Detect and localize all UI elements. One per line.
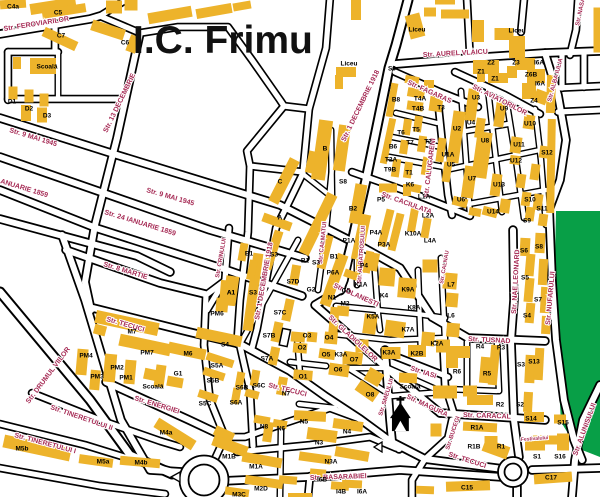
- svg-text:G2: G2: [307, 287, 316, 294]
- svg-text:S6B: S6B: [236, 385, 249, 392]
- svg-text:S14: S14: [525, 416, 537, 423]
- svg-text:O1: O1: [299, 374, 308, 381]
- svg-text:B2: B2: [349, 206, 358, 213]
- svg-text:S4: S4: [523, 313, 531, 320]
- svg-text:U7: U7: [468, 176, 477, 183]
- svg-text:U13: U13: [493, 182, 505, 189]
- svg-text:U6: U6: [457, 197, 466, 204]
- svg-text:I6A: I6A: [535, 81, 545, 88]
- svg-text:L7: L7: [447, 282, 455, 289]
- svg-text:PM6: PM6: [210, 311, 224, 318]
- svg-text:T4A: T4A: [414, 96, 427, 103]
- svg-text:S2: S2: [516, 402, 524, 409]
- svg-text:G5: G5: [342, 288, 351, 295]
- svg-text:U2: U2: [453, 126, 462, 133]
- svg-text:K4: K4: [380, 293, 389, 300]
- svg-text:S1: S1: [533, 454, 541, 461]
- svg-text:PM3: PM3: [90, 374, 104, 381]
- svg-text:Z6B: Z6B: [525, 72, 538, 79]
- svg-text:N6: N6: [277, 426, 286, 433]
- svg-text:R3: R3: [497, 345, 506, 352]
- svg-text:K10A: K10A: [405, 231, 422, 238]
- svg-text:U14: U14: [487, 209, 499, 216]
- svg-text:S10: S10: [524, 197, 536, 204]
- svg-text:M4b: M4b: [135, 460, 148, 467]
- svg-text:Z3: Z3: [512, 60, 520, 67]
- svg-text:K3A: K3A: [382, 350, 395, 357]
- svg-text:C4a: C4a: [7, 4, 19, 11]
- svg-text:S7D: S7D: [287, 279, 300, 286]
- svg-text:T2A: T2A: [385, 157, 398, 164]
- svg-text:L4A: L4A: [424, 238, 437, 245]
- svg-text:S4: S4: [221, 342, 229, 349]
- svg-text:S3: S3: [270, 252, 278, 259]
- svg-text:N1: N1: [328, 295, 337, 302]
- svg-text:N4: N4: [343, 429, 352, 436]
- svg-text:Liceu: Liceu: [509, 28, 526, 35]
- svg-text:K3A: K3A: [334, 352, 347, 359]
- svg-text:S6: S6: [520, 248, 528, 255]
- svg-text:P4: P4: [360, 263, 368, 270]
- svg-text:I6A: I6A: [357, 489, 367, 496]
- svg-text:M2: M2: [340, 301, 349, 308]
- svg-text:D1: D1: [8, 99, 17, 106]
- svg-text:Z1: Z1: [491, 76, 499, 83]
- svg-text:PM4: PM4: [79, 353, 93, 360]
- svg-text:Z2: Z2: [487, 60, 495, 67]
- svg-text:C17: C17: [545, 475, 557, 482]
- svg-text:T7: T7: [406, 140, 414, 147]
- svg-text:I.C. Frimu: I.C. Frimu: [133, 19, 313, 62]
- svg-text:B1: B1: [330, 254, 339, 261]
- svg-text:P5: P5: [377, 197, 385, 204]
- svg-text:K7A: K7A: [401, 327, 414, 334]
- svg-text:K6: K6: [406, 182, 415, 189]
- svg-text:U10: U10: [524, 121, 536, 128]
- svg-text:D2: D2: [25, 106, 34, 113]
- svg-text:T9B: T9B: [384, 167, 397, 174]
- svg-text:C7: C7: [57, 33, 66, 40]
- svg-text:P1A: P1A: [343, 238, 356, 245]
- svg-text:R2: R2: [496, 402, 505, 409]
- svg-text:I4B: I4B: [336, 489, 346, 496]
- svg-text:PM7: PM7: [140, 350, 154, 357]
- svg-text:S5: S5: [521, 275, 529, 282]
- svg-text:U3: U3: [472, 95, 481, 102]
- svg-text:M5a: M5a: [97, 459, 110, 466]
- svg-text:S7: S7: [534, 297, 542, 304]
- svg-text:K1A: K1A: [354, 282, 367, 289]
- svg-text:O7: O7: [350, 357, 359, 364]
- svg-text:T2: T2: [424, 139, 432, 146]
- svg-text:T1: T1: [405, 170, 413, 177]
- svg-text:S3: S3: [312, 260, 320, 267]
- svg-text:S9: S9: [388, 66, 396, 73]
- svg-text:K2A: K2A: [430, 341, 443, 348]
- svg-text:N3: N3: [315, 440, 324, 447]
- svg-text:L1A: L1A: [418, 194, 431, 201]
- svg-text:R1: R1: [497, 444, 506, 451]
- svg-text:R4: R4: [476, 344, 485, 351]
- svg-text:U8: U8: [481, 138, 490, 145]
- svg-text:Z1: Z1: [477, 69, 485, 76]
- svg-text:S7A: S7A: [261, 356, 274, 363]
- svg-text:U12: U12: [510, 158, 522, 165]
- svg-text:S5B: S5B: [207, 378, 220, 385]
- svg-text:U9: U9: [500, 106, 509, 113]
- svg-text:T4B: T4B: [412, 106, 425, 113]
- svg-text:A: A: [278, 215, 283, 222]
- svg-text:A1: A1: [227, 290, 236, 297]
- svg-text:M4a: M4a: [160, 430, 173, 437]
- svg-text:R1A: R1A: [470, 425, 483, 432]
- svg-text:R1B: R1B: [467, 444, 480, 451]
- svg-text:C: C: [278, 179, 283, 186]
- svg-text:O8: O8: [366, 392, 375, 399]
- svg-text:N7: N7: [282, 391, 291, 398]
- svg-text:K5A: K5A: [366, 314, 379, 321]
- svg-text:T5: T5: [412, 127, 420, 134]
- svg-text:PM2: PM2: [110, 365, 124, 372]
- svg-text:P6A: P6A: [327, 270, 340, 277]
- svg-text:U5: U5: [447, 162, 456, 169]
- svg-text:Scoală: Scoală: [37, 64, 58, 71]
- svg-text:M1B: M1B: [222, 454, 236, 461]
- svg-text:B1: B1: [301, 258, 310, 265]
- svg-text:M5b: M5b: [16, 446, 29, 453]
- svg-text:R6: R6: [453, 369, 462, 376]
- svg-text:N3A: N3A: [324, 459, 337, 466]
- svg-text:I6A: I6A: [534, 60, 544, 67]
- svg-text:U1A: U1A: [441, 152, 454, 159]
- svg-text:S8: S8: [339, 179, 347, 186]
- svg-text:K2B: K2B: [410, 351, 423, 358]
- svg-text:M3C: M3C: [232, 492, 246, 498]
- svg-text:S6A: S6A: [230, 400, 243, 407]
- svg-text:D3: D3: [43, 113, 52, 120]
- svg-text:O6: O6: [334, 367, 343, 374]
- svg-text:S5C: S5C: [199, 401, 212, 408]
- svg-text:S6C: S6C: [253, 383, 266, 390]
- svg-text:Z4: Z4: [530, 98, 538, 105]
- svg-text:G1: G1: [174, 371, 183, 378]
- svg-text:B8: B8: [392, 97, 401, 104]
- svg-text:B1: B1: [245, 251, 254, 258]
- svg-text:U11: U11: [513, 142, 525, 149]
- svg-text:S3: S3: [249, 290, 257, 297]
- svg-text:O3: O3: [303, 333, 312, 340]
- svg-text:I6B: I6B: [317, 477, 327, 484]
- svg-text:S7C: S7C: [274, 310, 287, 317]
- svg-text:S13: S13: [528, 359, 540, 366]
- svg-text:Scoală: Scoală: [400, 384, 421, 391]
- svg-text:K8A: K8A: [407, 305, 420, 312]
- svg-text:L2A: L2A: [422, 213, 435, 220]
- svg-text:M7: M7: [127, 329, 136, 336]
- svg-text:L6: L6: [447, 313, 455, 320]
- svg-text:B6: B6: [389, 144, 398, 151]
- svg-text:S3: S3: [517, 362, 525, 369]
- svg-text:S15: S15: [557, 420, 569, 427]
- svg-text:S11: S11: [536, 206, 548, 213]
- svg-text:Scoală: Scoală: [143, 384, 164, 391]
- svg-text:Liceu: Liceu: [341, 61, 358, 68]
- svg-text:N5: N5: [300, 419, 309, 426]
- svg-text:C15: C15: [461, 485, 473, 492]
- svg-text:S9: S9: [523, 218, 531, 225]
- svg-text:C6: C6: [121, 40, 130, 47]
- svg-text:M1A: M1A: [249, 464, 263, 471]
- svg-text:P3A: P3A: [378, 242, 391, 249]
- svg-text:P4A: P4A: [370, 230, 383, 237]
- svg-text:O5: O5: [322, 352, 331, 359]
- svg-text:M6: M6: [183, 351, 192, 358]
- svg-text:S8: S8: [535, 244, 543, 251]
- svg-text:O2: O2: [298, 345, 307, 352]
- svg-text:N8: N8: [260, 424, 269, 431]
- svg-text:S7B: S7B: [263, 333, 276, 340]
- svg-text:R5: R5: [483, 371, 492, 378]
- svg-text:K9A: K9A: [401, 287, 414, 294]
- svg-text:M2D: M2D: [254, 486, 268, 493]
- svg-text:T3: T3: [437, 105, 445, 112]
- svg-text:PM1: PM1: [119, 375, 133, 382]
- svg-text:S16: S16: [554, 454, 566, 461]
- svg-text:C5: C5: [54, 10, 63, 17]
- svg-text:O4: O4: [325, 335, 334, 342]
- svg-text:S12: S12: [541, 150, 553, 157]
- svg-text:B: B: [323, 146, 328, 153]
- svg-text:Liceu: Liceu: [409, 27, 426, 34]
- svg-text:T6: T6: [397, 130, 405, 137]
- svg-text:U4: U4: [467, 120, 476, 127]
- svg-text:S5A: S5A: [211, 363, 224, 370]
